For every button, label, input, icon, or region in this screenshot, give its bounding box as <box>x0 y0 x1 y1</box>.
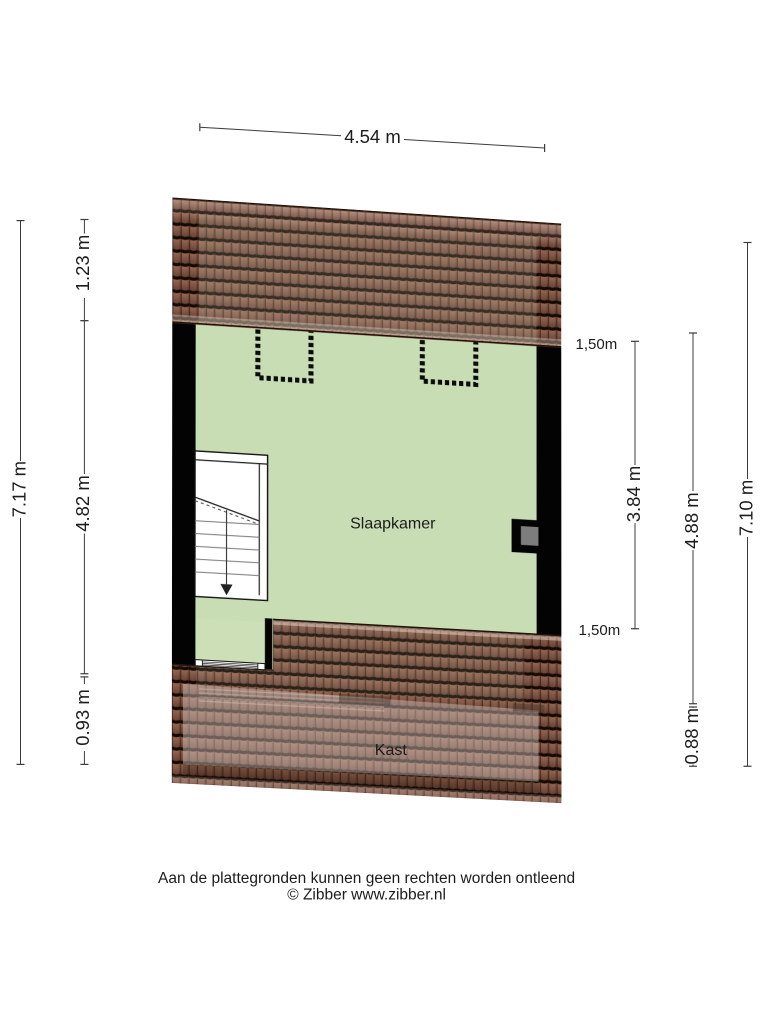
svg-text:© Zibber www.zibber.nl: © Zibber www.zibber.nl <box>287 887 446 904</box>
svg-text:1,50m: 1,50m <box>579 622 621 639</box>
svg-text:Slaapkamer: Slaapkamer <box>350 516 436 533</box>
svg-text:Kast: Kast <box>375 742 408 759</box>
svg-text:Aan de plattegronden kunnen ge: Aan de plattegronden kunnen geen rechten… <box>158 870 575 887</box>
svg-text:7.10 m: 7.10 m <box>735 480 756 537</box>
svg-text:3.84 m: 3.84 m <box>623 466 644 523</box>
svg-text:1.23 m: 1.23 m <box>72 235 93 292</box>
svg-text:1,50m: 1,50m <box>576 336 618 353</box>
svg-text:0.93 m: 0.93 m <box>72 689 93 746</box>
svg-text:4.88 m: 4.88 m <box>681 492 702 549</box>
svg-text:0.88 m: 0.88 m <box>681 708 702 765</box>
svg-text:4.82 m: 4.82 m <box>72 475 93 532</box>
svg-text:7.17 m: 7.17 m <box>8 461 29 518</box>
svg-text:4.54 m: 4.54 m <box>344 126 401 147</box>
